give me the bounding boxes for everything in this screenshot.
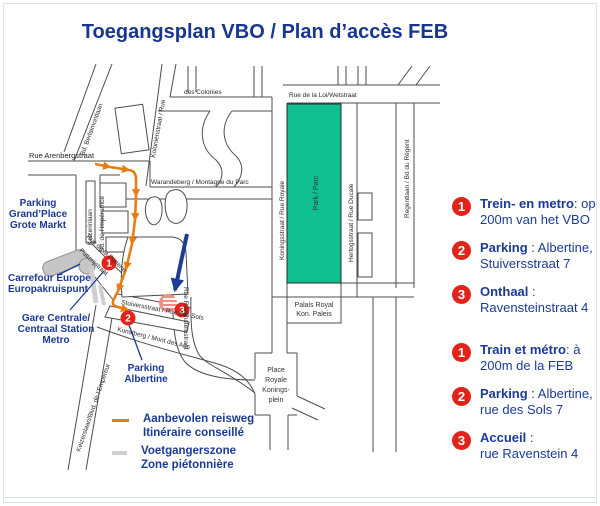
legend-route-line2: Itinéraire conseillé bbox=[143, 427, 254, 441]
info-item-nl-1: 1 Trein- en metro: op200m van het VBO bbox=[452, 196, 600, 227]
pedestrian-zone-swatch bbox=[112, 451, 127, 455]
legend-pedestrian-line1: Voetgangerszone bbox=[141, 445, 236, 459]
svg-text:2: 2 bbox=[125, 314, 131, 325]
place-royale-2: Royale bbox=[265, 377, 287, 384]
street-label-warandeberg: Warandeberg / Montagne du Parc bbox=[151, 179, 249, 186]
poi-gare-2: Centraal Station bbox=[18, 324, 95, 335]
info-item-nl-3: 3 Onthaal :Ravensteinstraat 4 bbox=[452, 284, 600, 315]
place-royale-4: plein bbox=[269, 397, 284, 404]
poi-carrefour-2: Europakruispunt bbox=[8, 284, 89, 295]
poi-gare-1: Gare Centrale/ bbox=[22, 313, 91, 324]
legend-pedestrian: Voetgangerszone Zone piétonnière bbox=[112, 445, 254, 472]
marker-badge-nl-2: 2 bbox=[452, 241, 471, 260]
info-item-fr-1: 1 Train et métro: à200m de la FEB bbox=[452, 342, 600, 373]
map-legend: Aanbevolen reisweg Itinéraire conseillé … bbox=[112, 413, 254, 477]
street-label-loi: Rue de la Loi/Wetstraat bbox=[289, 92, 357, 99]
marker-badge-nl-1: 1 bbox=[452, 197, 471, 216]
palais-royal-block bbox=[287, 297, 341, 323]
marker-badge-fr-2: 2 bbox=[452, 387, 471, 406]
place-royale-3: Konings- bbox=[262, 387, 290, 394]
palais-label-1: Palais Royal bbox=[295, 302, 334, 309]
place-royale-1: Place bbox=[267, 367, 285, 374]
street-label-colonies: des Colonies bbox=[184, 89, 222, 96]
route-line-swatch bbox=[112, 419, 129, 422]
street-label-regent: Regentlaan / Bd du Régent bbox=[404, 139, 411, 218]
poi-parking-grandplace-3: Grote Markt bbox=[10, 220, 67, 231]
legend-route: Aanbevolen reisweg Itinéraire conseillé bbox=[112, 413, 254, 440]
palais-label-2: Kon. Paleis bbox=[296, 311, 332, 318]
poi-parking-grandplace-1: Parking bbox=[20, 198, 57, 209]
info-item-fr-2: 2 Parking : Albertine,rue des Sols 7 bbox=[452, 386, 600, 417]
poi-parking-grandplace-2: Grand’Place bbox=[9, 209, 68, 220]
street-label-ravenstein: Rue Ravensteinstraat bbox=[182, 287, 189, 350]
street-label-kolonien: Koloniënstraat / Rue bbox=[150, 99, 167, 159]
info-item-nl-2: 2 Parking : Albertine,Stuiversstraat 7 bbox=[452, 240, 600, 271]
park-label: Park / Parc bbox=[313, 175, 320, 210]
info-item-fr-3: 3 Accueil :rue Ravenstein 4 bbox=[452, 430, 600, 461]
poi-albertine-2: Albertine bbox=[124, 374, 168, 385]
street-label-empereur: Keizerslaan/Blvd. de l’Empereur bbox=[75, 362, 112, 453]
poi-gare-3: Metro bbox=[42, 335, 69, 346]
marker-badge-nl-3: 3 bbox=[452, 285, 471, 304]
poi-carrefour-1: Carrefour Europe bbox=[8, 273, 91, 284]
map-marker-2: 2 bbox=[121, 311, 136, 326]
marker-badge-fr-1: 1 bbox=[452, 343, 471, 362]
street-label-royale: Koningsstraat / Rue Royale bbox=[279, 180, 286, 260]
poi-albertine-1: Parking bbox=[128, 363, 165, 374]
info-panel: 1 Trein- en metro: op200m van het VBO 2 … bbox=[452, 196, 600, 474]
marker-badge-fr-3: 3 bbox=[452, 431, 471, 450]
legend-pedestrian-line2: Zone piétonnière bbox=[141, 459, 236, 473]
street-label-ducale: Hertogsstraat / Rue Ducale bbox=[348, 183, 355, 262]
street-label-berlaimont: Bd. Berlaimontlaan bbox=[79, 102, 104, 156]
legend-route-line1: Aanbevolen reisweg bbox=[143, 413, 254, 427]
